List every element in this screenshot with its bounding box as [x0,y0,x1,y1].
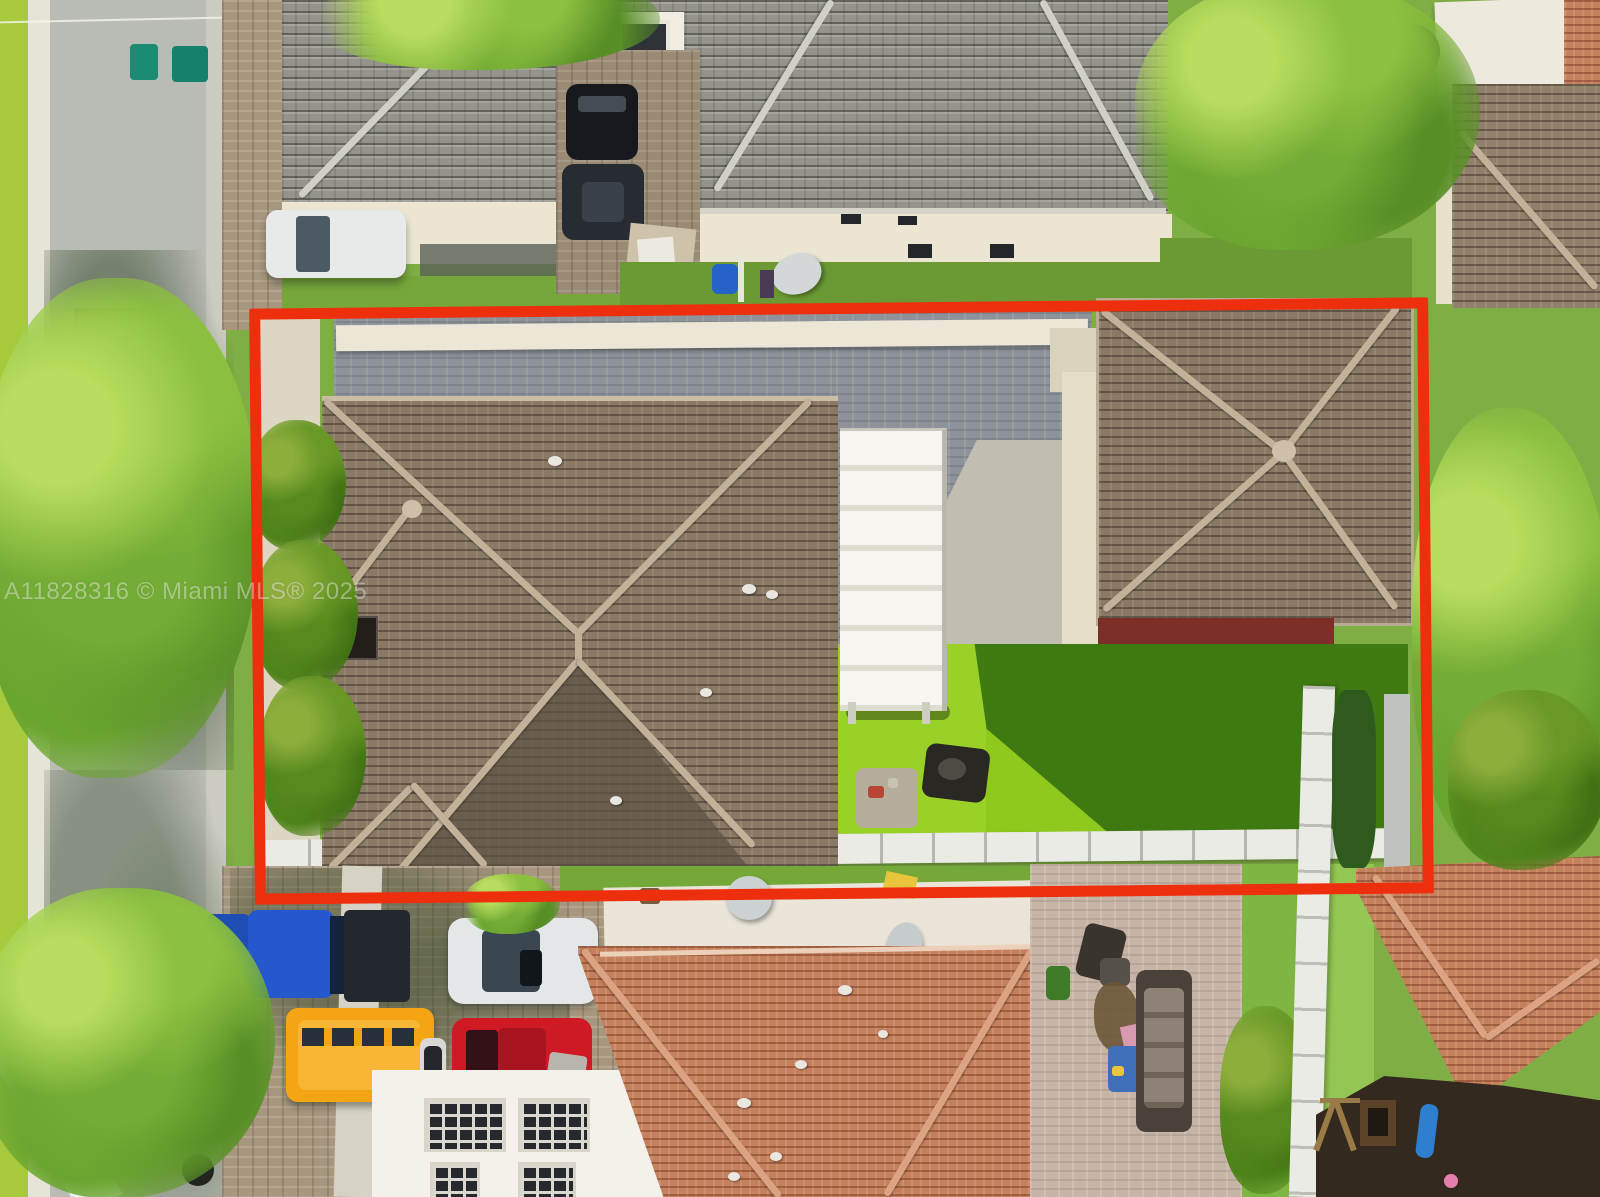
house2-window [990,244,1014,258]
tree-northeast [1135,0,1480,250]
white-van [266,210,406,278]
dark-grey-car-roof [582,182,624,222]
sofa-cushions [1144,988,1184,1108]
orange-van-windows [302,1028,420,1046]
mls-watermark: A11828316 © Miami MLS® 2025 [4,578,367,606]
roof-vent [728,1172,740,1181]
garage-door-window [518,1162,576,1197]
yellow-spot [1112,1066,1124,1076]
swing-frame-top [1320,1098,1360,1103]
white-suv-sunroof [520,950,542,986]
garage-door-window [430,1162,480,1197]
black-suv-glass [578,96,626,112]
house2-window [908,244,932,258]
house2-window [841,214,861,224]
white-post [738,252,744,302]
play-structure-opening [1368,1108,1388,1136]
house2-window [898,216,917,225]
green-planter [1046,966,1070,1000]
roof-vent [878,1030,888,1038]
blue-pickup-bed [344,910,410,1002]
trash-bin-2 [172,46,208,82]
blue-barrel [712,264,738,294]
garage-door-window [518,1098,590,1152]
tree-east-lower [1448,690,1600,870]
playground-mulch [1316,1076,1600,1197]
roof-vent [737,1098,751,1108]
orange-roof-corner-ne [1564,0,1600,88]
aerial-photo: A11828316 © Miami MLS® 2025 [0,0,1600,1197]
property-outline [249,297,1434,904]
dark-yard-item [760,270,774,298]
roof-vent [770,1152,782,1161]
white-van-windshield [296,216,330,272]
trash-bin-1 [130,44,158,80]
garage-door-window [424,1098,506,1152]
roof-vent [795,1060,807,1069]
pink-ball [1444,1174,1458,1188]
roof-vent [838,985,852,995]
